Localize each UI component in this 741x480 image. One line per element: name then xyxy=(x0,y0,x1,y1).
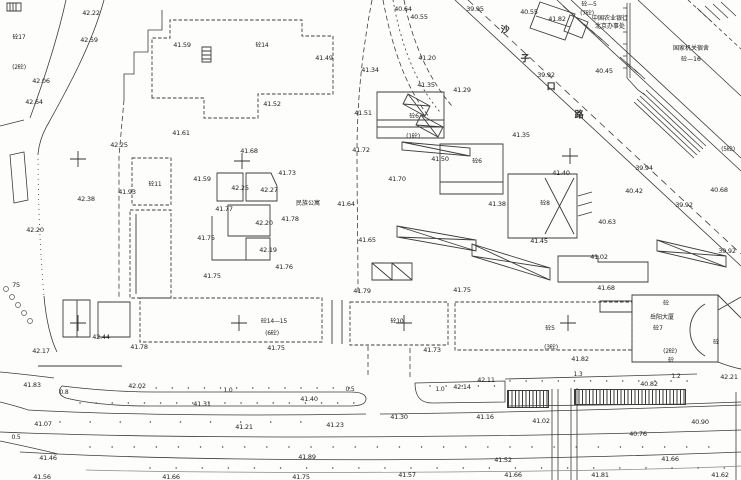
elevation-label: 42.25 xyxy=(231,185,249,192)
building-code-label: 砼6 xyxy=(472,159,481,165)
elevation-label: 40.55 xyxy=(410,14,428,21)
elevation-label: 42.44 xyxy=(92,334,110,341)
elevation-label: 41.66 xyxy=(661,456,679,463)
elevation-label: 41.81 xyxy=(591,472,609,479)
elevation-label: 41.73 xyxy=(423,347,441,354)
elevation-label: 41.40 xyxy=(300,396,318,403)
elevation-label: 41.68 xyxy=(597,285,615,292)
building-code-label: 砼 xyxy=(713,340,719,346)
elevation-label: 41.02 xyxy=(590,254,608,261)
elevation-label: 40.64 xyxy=(394,6,412,13)
elevation-label: 41.66 xyxy=(504,472,522,479)
elevation-label: 41.49 xyxy=(315,55,333,62)
elevation-label: 41.64 xyxy=(337,201,355,208)
building-code-label: (2砼) xyxy=(663,349,677,355)
elevation-label: 39.95 xyxy=(466,6,484,13)
apartment-name-label: 民族公寓 xyxy=(296,201,320,207)
elevation-label: 41.82 xyxy=(571,356,589,363)
elevation-label: 41.31 xyxy=(193,401,211,408)
elevation-label: 41.56 xyxy=(33,474,51,480)
elevation-label: 41.93 xyxy=(118,189,136,196)
elevation-label: 42.27 xyxy=(260,187,278,194)
elevation-label: 41.75 xyxy=(197,235,215,242)
building-code-label: 砼—5 xyxy=(581,2,596,8)
road-width-label: 0.5 xyxy=(346,387,355,393)
building-code-label: 砼14 xyxy=(255,43,268,49)
elevation-label: 41.35 xyxy=(417,82,435,89)
tower-name-label: 岳阳大厦 xyxy=(650,315,674,321)
elevation-label: 41.46 xyxy=(39,455,57,462)
elevation-label: 75 xyxy=(12,282,20,289)
road-name-char: 路 xyxy=(575,112,584,121)
building-code-label: (3砼) xyxy=(544,345,558,351)
elevation-label: 41.07 xyxy=(34,421,52,428)
dorm-name-label: 砼—16 xyxy=(681,57,701,63)
elevation-label: 42.38 xyxy=(77,196,95,203)
elevation-label: 41.38 xyxy=(488,201,506,208)
road-width-label: 1.0 xyxy=(224,388,233,394)
building-code-label: 砼5 xyxy=(545,326,554,332)
elevation-label: 42.20 xyxy=(255,220,273,227)
building-code-label: (5砼) xyxy=(721,147,735,153)
elevation-label: 41.75 xyxy=(292,474,310,480)
elevation-label: 41.82 xyxy=(548,16,566,23)
road-name-char: 子 xyxy=(521,56,530,65)
elevation-label: 41.65 xyxy=(358,237,376,244)
elevation-label: 39.94 xyxy=(635,165,653,172)
site-plan-canvas: 42.2242.5941.5940.6440.5539.9540.5541.82… xyxy=(0,0,741,480)
tower-name-label: 砼7 xyxy=(653,326,663,332)
elevation-label: 40.55 xyxy=(520,9,538,16)
elevation-label: 42.02 xyxy=(128,383,146,390)
elevation-label: 40.90 xyxy=(691,419,709,426)
elevation-label: 40.76 xyxy=(629,431,647,438)
elevation-label: 41.52 xyxy=(263,101,281,108)
elevation-label: 42.21 xyxy=(720,374,738,381)
elevation-label: 39.92 xyxy=(718,248,736,255)
road-width-label: 1.2 xyxy=(672,374,681,380)
elevation-label: 40.63 xyxy=(598,219,616,226)
elevation-label: 41.77 xyxy=(215,206,233,213)
elevation-label: 41.66 xyxy=(162,474,180,480)
building-code-label: 砼 xyxy=(668,358,674,364)
elevation-label: 41.61 xyxy=(172,130,190,137)
elevation-label: 39.92 xyxy=(537,72,555,79)
elevation-label: 41.51 xyxy=(354,110,372,117)
elevation-label: 41.16 xyxy=(476,414,494,421)
elevation-label: 42.20 xyxy=(26,227,44,234)
elevation-label: 42.22 xyxy=(82,10,100,17)
elevation-label: 42.14 xyxy=(453,384,471,391)
road-width-label: 1.3 xyxy=(574,372,583,378)
elevation-label: 41.59 xyxy=(193,176,211,183)
elevation-label: 41.70 xyxy=(388,176,406,183)
elevation-label: 39.92 xyxy=(675,202,693,209)
road-width-label: 1.0 xyxy=(436,387,445,393)
elevation-label: 41.76 xyxy=(275,264,293,271)
road-width-label: 0.8 xyxy=(60,390,69,396)
elevation-label: 42.59 xyxy=(80,37,98,44)
building-code-label: (1砼) xyxy=(406,134,420,140)
elevation-label: 41.62 xyxy=(711,472,729,479)
building-code-label: 砼8 xyxy=(540,201,549,207)
elevation-label: 42.19 xyxy=(259,247,277,254)
bank-name-label: 中国农业银行 xyxy=(592,16,628,22)
elevation-label: 41.40 xyxy=(552,170,570,177)
dorm-name-label: 国家机关宿舍 xyxy=(673,46,709,52)
elevation-label: 42.64 xyxy=(25,99,43,106)
elevation-label: 41.79 xyxy=(353,288,371,295)
elevation-label: 41.72 xyxy=(352,147,370,154)
building-code-label: 砼 xyxy=(663,301,669,307)
road-width-label: 0.5 xyxy=(12,435,21,441)
elevation-label: 40.42 xyxy=(625,188,643,195)
elevation-label: 41.89 xyxy=(298,454,316,461)
elevation-label: 40.45 xyxy=(595,68,613,75)
elevation-label: 41.21 xyxy=(235,424,253,431)
annotation-layer: 42.2242.5941.5940.6440.5539.9540.5541.82… xyxy=(0,0,741,480)
elevation-label: 42.25 xyxy=(110,142,128,149)
elevation-label: 41.75 xyxy=(267,345,285,352)
road-name-char: 口 xyxy=(547,84,556,93)
elevation-label: 41.68 xyxy=(240,148,258,155)
elevation-label: 41.83 xyxy=(23,382,41,389)
building-code-label: (2砼) xyxy=(12,65,26,71)
elevation-label: 41.29 xyxy=(453,87,471,94)
building-code-label: 砼14—15 xyxy=(261,319,287,325)
elevation-label: 41.59 xyxy=(173,42,191,49)
building-code-label: 砼10 xyxy=(390,319,403,325)
elevation-label: 41.02 xyxy=(532,418,550,425)
elevation-label: 41.50 xyxy=(431,156,449,163)
elevation-label: 41.30 xyxy=(390,414,408,421)
elevation-label: 41.57 xyxy=(398,472,416,479)
building-code-label: 砼6 xyxy=(409,114,418,120)
building-code-label: (6砼) xyxy=(265,331,279,337)
elevation-label: 41.78 xyxy=(281,216,299,223)
road-name-char: 沙 xyxy=(501,27,510,36)
elevation-label: 41.52 xyxy=(494,457,512,464)
elevation-label: 41.23 xyxy=(326,422,344,429)
bank-name-label: 北京办事处 xyxy=(595,24,625,30)
elevation-label: 41.45 xyxy=(530,238,548,245)
elevation-label: 42.11 xyxy=(477,377,495,384)
elevation-label: 41.34 xyxy=(361,67,379,74)
elevation-label: 41.75 xyxy=(203,273,221,280)
elevation-label: 41.73 xyxy=(278,170,296,177)
building-code-label: 砼11 xyxy=(148,182,161,188)
elevation-label: 41.35 xyxy=(512,132,530,139)
elevation-label: 41.78 xyxy=(130,344,148,351)
elevation-label: 40.68 xyxy=(710,187,728,194)
elevation-label: 41.20 xyxy=(418,55,436,62)
elevation-label: 42.17 xyxy=(32,348,50,355)
elevation-label: 41.75 xyxy=(453,287,471,294)
elevation-label: 40.82 xyxy=(640,381,658,388)
elevation-label: 42.06 xyxy=(32,78,50,85)
building-code-label: 砼17 xyxy=(12,35,25,41)
